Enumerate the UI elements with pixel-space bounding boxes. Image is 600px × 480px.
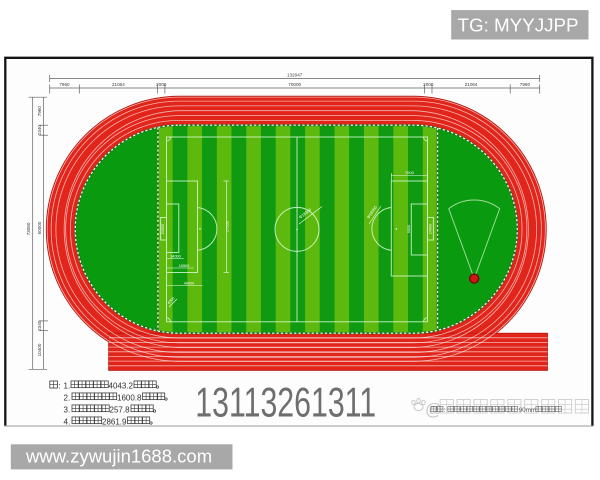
svg-text:13113261311: 13113261311 <box>195 379 376 426</box>
svg-text:7960: 7960 <box>59 82 70 87</box>
svg-text:4.: 4. <box>64 417 71 426</box>
svg-text:2340: 2340 <box>37 320 42 331</box>
svg-text:9000: 9000 <box>407 225 411 233</box>
svg-text:70000: 70000 <box>288 82 301 87</box>
svg-text:7000: 7000 <box>405 170 415 175</box>
svg-text::: : <box>444 407 446 414</box>
svg-text:50000: 50000 <box>37 221 42 234</box>
svg-text:7960: 7960 <box>520 82 531 87</box>
svg-text:2861.9: 2861.9 <box>102 417 127 426</box>
svg-text:www.zywujin1688.com: www.zywujin1688.com <box>25 446 212 467</box>
svg-text:2000: 2000 <box>156 82 167 87</box>
svg-text:21064: 21064 <box>112 82 125 87</box>
svg-text:3.: 3. <box>64 405 71 414</box>
svg-text:1600.8: 1600.8 <box>117 393 142 402</box>
svg-text:2.: 2. <box>64 393 71 402</box>
svg-text:7960: 7960 <box>37 106 42 117</box>
svg-text::: : <box>59 381 61 390</box>
svg-text:1.: 1. <box>64 381 71 390</box>
svg-text:73080: 73080 <box>26 222 31 235</box>
svg-text:132047: 132047 <box>287 72 303 77</box>
svg-text:10400: 10400 <box>37 343 42 356</box>
svg-text:40000: 40000 <box>184 281 195 285</box>
svg-text:34000: 34000 <box>170 254 181 258</box>
svg-text:16500: 16500 <box>179 264 190 268</box>
svg-text:90mm: 90mm <box>519 407 537 414</box>
svg-text:27500: 27500 <box>225 220 230 232</box>
svg-text:24000: 24000 <box>161 224 165 235</box>
svg-text:21064: 21064 <box>465 82 478 87</box>
svg-text:24000: 24000 <box>429 224 433 235</box>
svg-text:4043.2: 4043.2 <box>109 381 134 390</box>
svg-text:257.8: 257.8 <box>110 405 131 414</box>
svg-text:2000: 2000 <box>423 82 434 87</box>
svg-text:2340: 2340 <box>37 125 42 136</box>
svg-text:TG: MYYJJPP: TG: MYYJJPP <box>458 15 579 36</box>
